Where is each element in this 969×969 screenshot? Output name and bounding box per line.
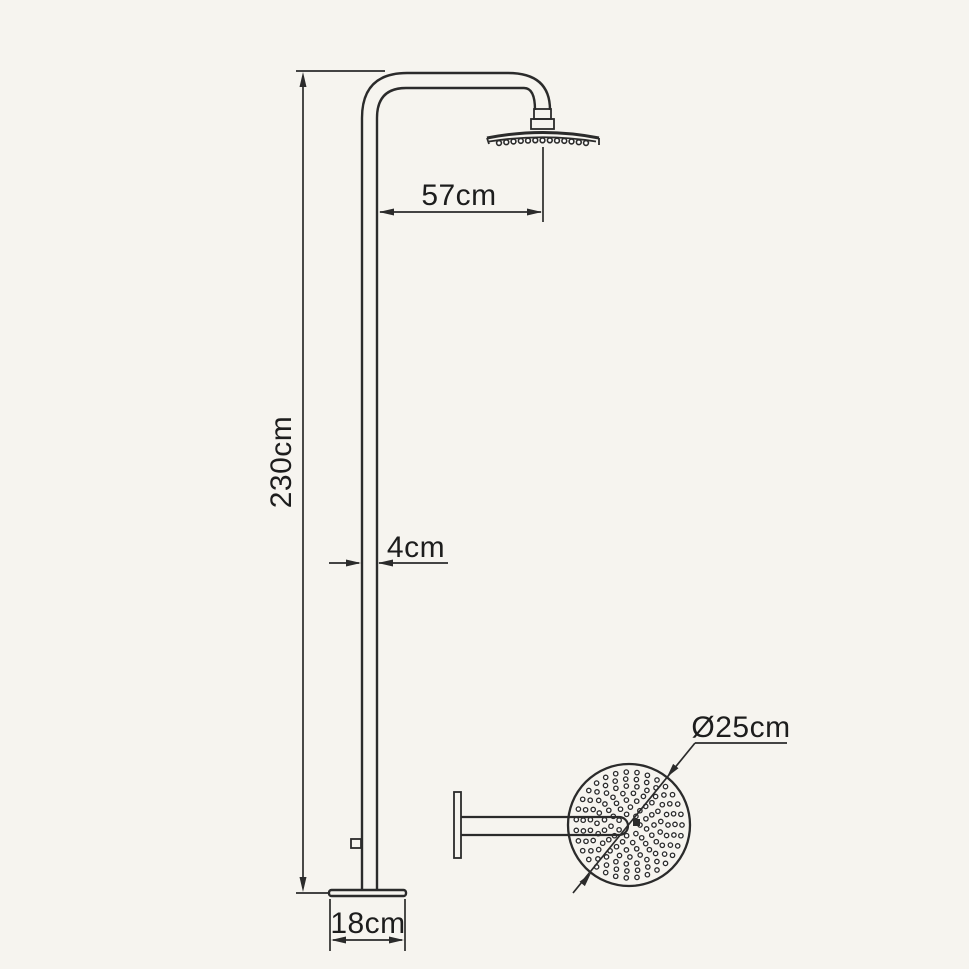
spray-hole-dot <box>631 840 635 844</box>
spray-hole-dot <box>650 813 654 817</box>
arm-center-pivot <box>633 819 640 826</box>
spray-hole-dot <box>602 818 606 822</box>
spray-hole-dot <box>679 812 683 816</box>
spray-hole-dot <box>624 876 628 880</box>
spray-hole-dot <box>614 801 618 805</box>
spray-hole-dot <box>618 807 622 811</box>
spray-hole-dot <box>668 843 672 847</box>
nozzle-bump <box>504 140 509 145</box>
spray-hole-dot <box>628 805 632 809</box>
spray-hole-dot <box>635 770 639 774</box>
nozzle-bump <box>555 138 560 143</box>
spray-hole-dot <box>614 860 618 864</box>
spray-hole-dot <box>645 780 649 784</box>
spray-hole-dot <box>613 779 617 783</box>
spray-hole-dot <box>624 834 628 838</box>
spray-hole-dot <box>604 791 608 795</box>
spray-hole-dot <box>609 824 613 828</box>
spray-hole-dot <box>679 834 683 838</box>
spray-hole-dot <box>680 823 684 827</box>
spray-hole-dot <box>604 863 608 867</box>
spray-hole-dot <box>597 847 601 851</box>
spray-hole-dot <box>634 831 638 835</box>
spray-hole-dot <box>640 836 644 840</box>
spray-hole-dot <box>581 849 585 853</box>
nozzle-bump <box>497 141 502 146</box>
spray-hole-dot <box>644 841 648 845</box>
drawing-background <box>0 0 969 969</box>
spray-hole-dot <box>635 847 639 851</box>
spray-hole-dot <box>603 802 607 806</box>
spray-hole-dot <box>658 830 662 834</box>
spray-hole-dot <box>659 819 663 823</box>
height-dimension-label: 230cm <box>265 416 298 509</box>
nozzle-bump <box>526 138 531 143</box>
spray-hole-dot <box>664 812 668 816</box>
drawing-canvas: 230cm 57cm 4cm 18cm <box>0 0 969 969</box>
spray-hole-dot <box>602 828 606 832</box>
spray-hole-dot <box>645 873 649 877</box>
nozzle-bump <box>584 141 589 146</box>
spray-hole-dot <box>624 848 628 852</box>
nozzle-bump <box>533 138 538 143</box>
spray-hole-dot <box>595 790 599 794</box>
nozzle-bump <box>547 138 552 143</box>
spray-hole-dot <box>644 827 648 831</box>
spray-hole-dot <box>625 869 629 873</box>
spray-hole-dot <box>603 783 607 787</box>
spray-hole-dot <box>676 802 680 806</box>
spray-hole-dot <box>638 853 642 857</box>
spray-hole-dot <box>652 823 656 827</box>
spray-hole-dot <box>604 870 608 874</box>
spray-hole-dot <box>664 833 668 837</box>
spray-hole-dot <box>663 784 667 788</box>
spray-hole-dot <box>611 795 615 799</box>
spray-hole-dot <box>594 781 598 785</box>
spray-hole-dot <box>653 794 657 798</box>
nozzle-bump <box>562 139 567 144</box>
spray-hole-dot <box>604 775 608 779</box>
spray-hole-dot <box>641 794 645 798</box>
spray-hole-dot <box>624 798 628 802</box>
spray-hole-dot <box>650 833 654 837</box>
spray-hole-dot <box>583 808 587 812</box>
spray-hole-dot <box>607 808 611 812</box>
spray-hole-dot <box>604 855 608 859</box>
spray-hole-dot <box>645 788 649 792</box>
spray-hole-dot <box>662 852 666 856</box>
arm-dimension-label: 57cm <box>421 179 496 212</box>
nozzle-bump <box>540 138 545 143</box>
spray-hole-dot <box>671 812 675 816</box>
spray-hole-dot <box>614 874 618 878</box>
spray-hole-dot <box>631 791 635 795</box>
spray-hole-dot <box>621 791 625 795</box>
spray-hole-dot <box>588 818 592 822</box>
spray-hole-dot <box>588 798 592 802</box>
pipe-width-label: 4cm <box>387 531 445 564</box>
spray-hole-dot <box>655 868 659 872</box>
spray-hole-dot <box>644 817 648 821</box>
spray-hole-dot <box>676 844 680 848</box>
spray-hole-dot <box>645 857 649 861</box>
spray-hole-dot <box>653 851 657 855</box>
spray-hole-dot <box>591 807 595 811</box>
spray-hole-dot <box>635 785 639 789</box>
spray-hole-dot <box>595 821 599 825</box>
spray-hole-dot <box>660 803 664 807</box>
spray-hole-dot <box>635 868 639 872</box>
spray-hole-dot <box>655 859 659 863</box>
spray-hole-dot <box>597 811 601 815</box>
spray-hole-dot <box>624 862 628 866</box>
spray-hole-dot <box>607 838 611 842</box>
spray-hole-dot <box>624 770 628 774</box>
spray-hole-dot <box>646 865 650 869</box>
spray-hole-dot <box>597 798 601 802</box>
spray-hole-dot <box>574 828 578 832</box>
spray-hole-dot <box>581 797 585 801</box>
spray-hole-dot <box>662 793 666 797</box>
spray-hole-dot <box>581 829 585 833</box>
spray-hole-dot <box>589 849 593 853</box>
spray-hole-dot <box>614 867 618 871</box>
nozzle-bump <box>576 140 581 145</box>
spray-hole-dot <box>672 833 676 837</box>
nozzle-bump <box>569 139 574 144</box>
spray-hole-dot <box>620 840 624 844</box>
spray-hole-dot <box>634 777 638 781</box>
spray-hole-dot <box>663 861 667 865</box>
spray-hole-dot <box>587 857 591 861</box>
spray-hole-dot <box>617 828 621 832</box>
spray-hole-dot <box>588 828 592 832</box>
spray-hole-dot <box>614 845 618 849</box>
spray-hole-dot <box>647 848 651 852</box>
spray-hole-dot <box>654 840 658 844</box>
spray-hole-dot <box>668 802 672 806</box>
spray-hole-dot <box>584 839 588 843</box>
spray-hole-dot <box>670 853 674 857</box>
spray-hole-dot <box>673 822 677 826</box>
spray-hole-dot <box>591 838 595 842</box>
spray-hole-dot <box>666 823 670 827</box>
spray-hole-dot <box>635 875 639 879</box>
spray-hole-dot <box>617 818 621 822</box>
shower-column-technical-drawing: 230cm 57cm 4cm 18cm <box>0 0 969 969</box>
nozzle-bump <box>511 139 516 144</box>
spray-hole-dot <box>645 773 649 777</box>
spray-hole-dot <box>624 812 628 816</box>
spray-hole-dot <box>614 786 618 790</box>
nozzle-bump <box>518 139 523 144</box>
base-dimension-label: 18cm <box>330 907 405 940</box>
head-diameter-label: Ø25cm <box>691 711 790 744</box>
spray-hole-dot <box>660 843 664 847</box>
spray-hole-dot <box>601 841 605 845</box>
spray-hole-dot <box>576 807 580 811</box>
spray-hole-dot <box>624 784 628 788</box>
spray-hole-dot <box>614 772 618 776</box>
spray-hole-dot <box>617 853 621 857</box>
spray-hole-dot <box>650 801 654 805</box>
spray-hole-dot <box>635 799 639 803</box>
spray-hole-dot <box>656 809 660 813</box>
spray-hole-dot <box>635 861 639 865</box>
spray-hole-dot <box>587 788 591 792</box>
spray-hole-dot <box>624 777 628 781</box>
spray-hole-dot <box>655 778 659 782</box>
spray-hole-dot <box>576 839 580 843</box>
spray-hole-dot <box>581 818 585 822</box>
spray-hole-dot <box>628 855 632 859</box>
spray-hole-dot <box>670 793 674 797</box>
